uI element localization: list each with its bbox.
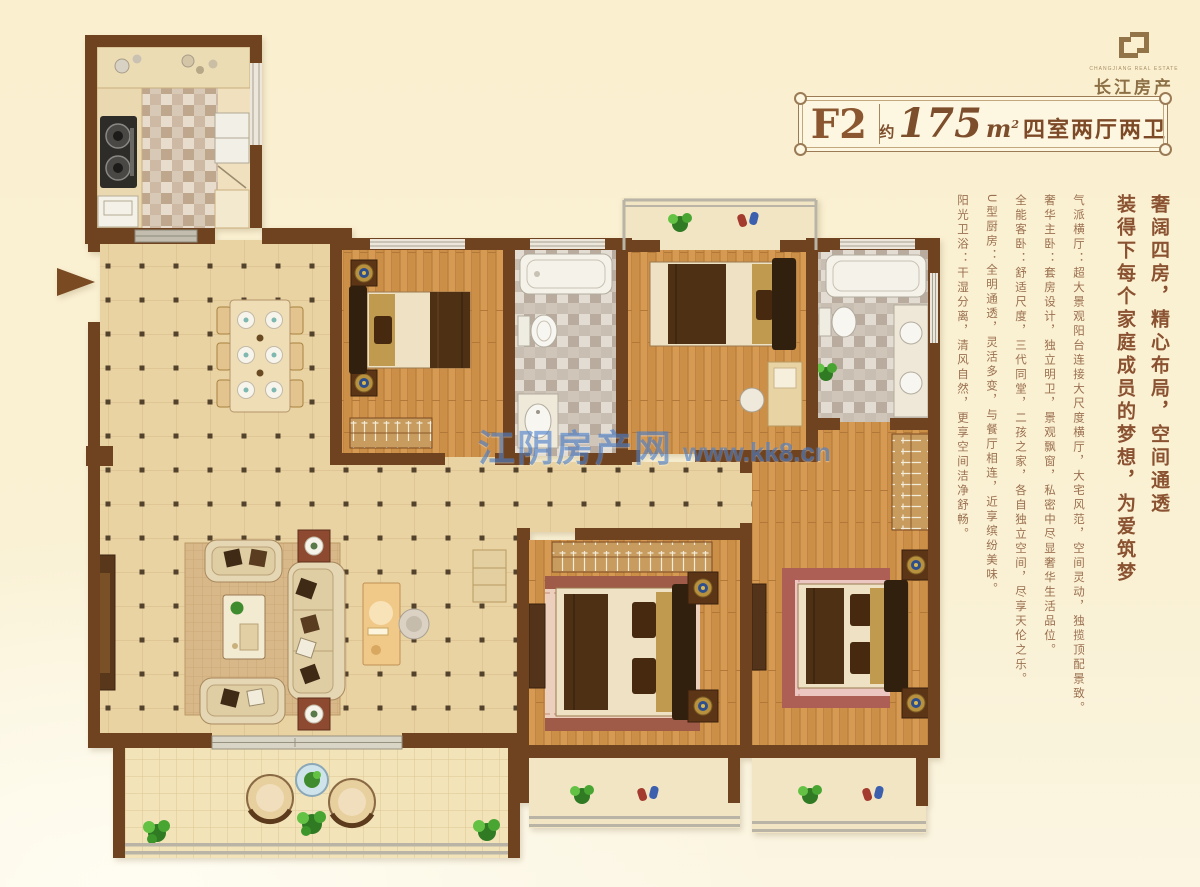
brand-logo-icon: [1117, 30, 1151, 60]
lounge-chair: [329, 779, 375, 826]
layout-text: 四室两厅两卫: [1023, 112, 1167, 144]
lounge-chair: [247, 775, 293, 822]
area-value: 175: [898, 104, 982, 144]
sofa-top: [205, 540, 282, 582]
bed1: [349, 286, 470, 374]
side-table-top: [298, 530, 330, 562]
tv-panel: [752, 584, 766, 670]
dining-set: [217, 300, 303, 412]
kitchen-board: [215, 190, 249, 228]
window: [840, 239, 915, 249]
headline-line1: 奢阔四房，精心布局，空间通透: [1145, 194, 1172, 774]
unit-badge: F2 约 175 m2 四室两厅两卫: [798, 96, 1168, 152]
double-vanity: [894, 305, 928, 417]
corridor-floor: [515, 462, 752, 532]
coffee-table: [223, 595, 265, 659]
watermark-site-name: 江阴房产网: [478, 418, 673, 472]
watermark: 江阴房产网 www.kk8.cn: [478, 418, 831, 472]
window: [930, 273, 938, 343]
sofa-main: [288, 562, 345, 700]
feature-item: U型厨房：全明通透，灵活多变，与餐厅相连，近享缤纷美味。: [983, 194, 999, 774]
sofa-bottom: [200, 678, 285, 724]
toilet: [819, 307, 856, 337]
bed2: [650, 258, 796, 350]
tv-panel: [529, 604, 545, 688]
feature-item: 全能客卧：舒适尺度，三代同堂，二孩之家，各自独立空间，尽享天伦之乐。: [1012, 194, 1028, 774]
feature-item: 气派横厅：超大景观阳台连接大尺度横厅，大宅风范，空间灵动，独揽顶配景致。: [1070, 194, 1086, 774]
brand-tagline: CHANGJIANG REAL ESTATE: [1086, 66, 1182, 72]
window: [530, 239, 605, 249]
watermark-site-url: www.kk8.cn: [683, 437, 831, 468]
cooktop: [100, 116, 137, 188]
round-table: [296, 764, 328, 796]
area-unit: m2: [986, 114, 1019, 143]
feature-item: 奢华主卧：套房设计，独立明卫，景观飘窗，私密中尽显奢华生活品位。: [1041, 194, 1057, 774]
badge-corner-ornament: [794, 143, 807, 156]
bedroom3: [529, 542, 718, 731]
entry-arrow-icon: [57, 268, 95, 296]
kitchen-tile: [142, 88, 218, 228]
badge-corner-ornament: [794, 92, 807, 105]
balcony-sliding-door: [212, 736, 402, 749]
bed3: [556, 584, 696, 720]
area-prefix: 约: [879, 121, 894, 142]
description-panel: 奢阔四房，精心布局，空间通透 装得下每个家庭成员的梦想，为爱筑梦 气派横厅：超大…: [941, 194, 1172, 774]
toilet: [518, 315, 557, 347]
hall-cabinet: [473, 550, 506, 602]
window: [250, 63, 262, 145]
unit-code: F2: [799, 101, 879, 148]
kitchen-sliding-door: [135, 230, 197, 242]
headline-line2: 装得下每个家庭成员的梦想，为爱筑梦: [1111, 194, 1138, 774]
master-bed: [798, 580, 908, 692]
page: CHANGJIANG REAL ESTATE 长江房产 F2 约 175 m2 …: [0, 0, 1200, 887]
badge-corner-ornament: [1159, 92, 1172, 105]
stool: [740, 388, 764, 412]
brand-logo: CHANGJIANG REAL ESTATE 长江房产: [1086, 30, 1182, 98]
badge-corner-ornament: [1159, 143, 1172, 156]
balcony-rail: [125, 843, 508, 847]
window: [370, 239, 465, 249]
side-table-bottom: [298, 698, 330, 730]
balcony-rail: [125, 851, 508, 855]
feature-item: 阳光卫浴：干湿分离，清风自然，更享空间洁净舒畅。: [954, 194, 970, 774]
